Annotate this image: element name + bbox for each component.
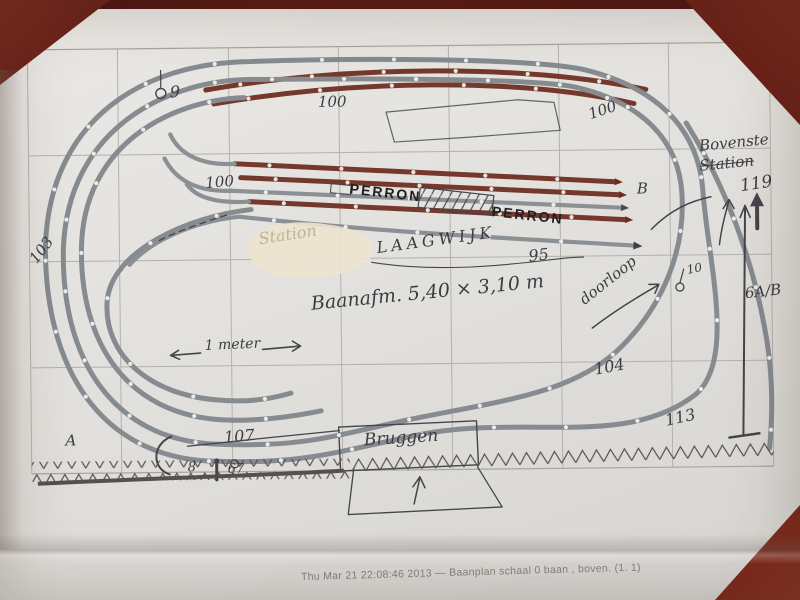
paper-edge-shadow-left bbox=[0, 70, 22, 550]
left-arrow-icon bbox=[171, 350, 201, 359]
grid-line bbox=[31, 360, 773, 368]
arrow-up-icon bbox=[719, 199, 734, 244]
track-number-100-top: 100 bbox=[318, 93, 347, 111]
turnout-number-10: 10 bbox=[686, 260, 704, 277]
corner-letter-b: B bbox=[637, 179, 648, 197]
upper-level-end-bar bbox=[729, 433, 759, 437]
turnout-number-8: 8 bbox=[188, 460, 196, 475]
turnout-10-circle bbox=[676, 283, 684, 291]
track-number-107: 107 bbox=[223, 425, 255, 446]
turnout-number-67: 67 bbox=[228, 462, 245, 477]
turnout-connector bbox=[170, 134, 234, 165]
turnout-10-stem bbox=[680, 269, 684, 283]
small-platform-box bbox=[330, 184, 351, 195]
scale-note-1-meter: 1 meter bbox=[204, 336, 260, 355]
grid-line bbox=[28, 148, 770, 156]
laagwijk-underline bbox=[372, 257, 584, 268]
table-surface-top-edge bbox=[0, 0, 800, 9]
track-number-100-mid-left: 100 bbox=[205, 172, 235, 192]
corner-letter-a: A bbox=[65, 431, 76, 449]
buffer-arrow-icon bbox=[621, 204, 629, 211]
paper-crease-shadow bbox=[0, 534, 800, 564]
track-number-95: 95 bbox=[527, 244, 549, 265]
buffer-arrow-icon bbox=[615, 178, 623, 185]
right-arrow-icon bbox=[262, 341, 300, 351]
buffer-arrow-icon bbox=[625, 216, 633, 223]
plan-border-top bbox=[27, 42, 769, 50]
buffer-arrow-icon bbox=[619, 191, 627, 198]
plan-sheet: 9 100 100 100 PERRON PERRON Bovenste Sta… bbox=[0, 0, 800, 600]
solid-arrow-up-icon bbox=[750, 192, 764, 228]
photo-of-track-plan: 9 100 100 100 PERRON PERRON Bovenste Sta… bbox=[0, 0, 800, 600]
bridge-arrow-up-icon bbox=[413, 477, 425, 504]
turnout-number-9: 9 bbox=[170, 82, 180, 101]
buffer-arrow-icon bbox=[633, 242, 643, 251]
scenery-outline bbox=[386, 99, 560, 142]
